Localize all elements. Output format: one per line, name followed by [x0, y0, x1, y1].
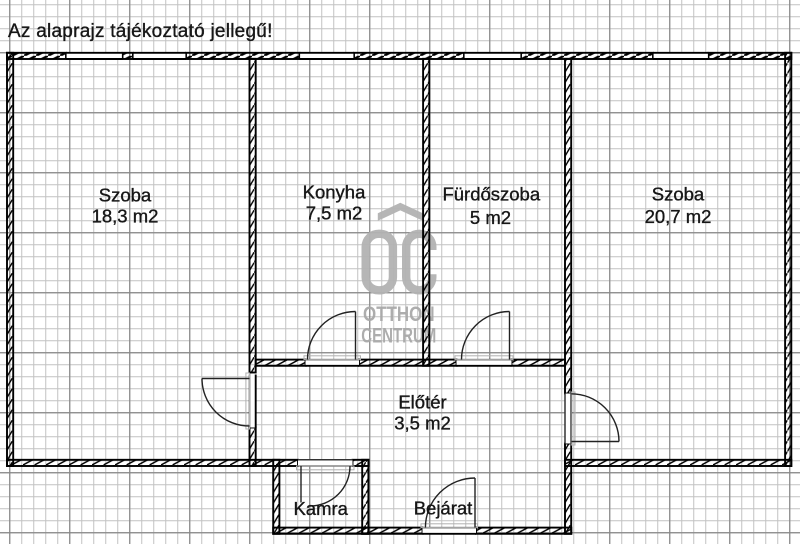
- svg-text:Bejárat: Bejárat: [414, 498, 473, 519]
- svg-text:Szoba: Szoba: [99, 185, 152, 206]
- svg-text:Konyha: Konyha: [303, 182, 366, 203]
- svg-text:5 m2: 5 m2: [470, 207, 511, 228]
- svg-text:7,5 m2: 7,5 m2: [306, 203, 363, 224]
- svg-text:18,3 m2: 18,3 m2: [92, 206, 159, 227]
- svg-text:Fürdőszoba: Fürdőszoba: [442, 184, 540, 205]
- svg-text:Az alaprajz tájékoztató jelleg: Az alaprajz tájékoztató jellegű!: [8, 21, 273, 42]
- svg-text:Előtér: Előtér: [398, 392, 446, 413]
- svg-text:3,5 m2: 3,5 m2: [394, 413, 451, 434]
- svg-text:20,7 m2: 20,7 m2: [645, 206, 712, 227]
- svg-text:Szoba: Szoba: [652, 184, 705, 205]
- svg-text:Kamra: Kamra: [293, 498, 348, 519]
